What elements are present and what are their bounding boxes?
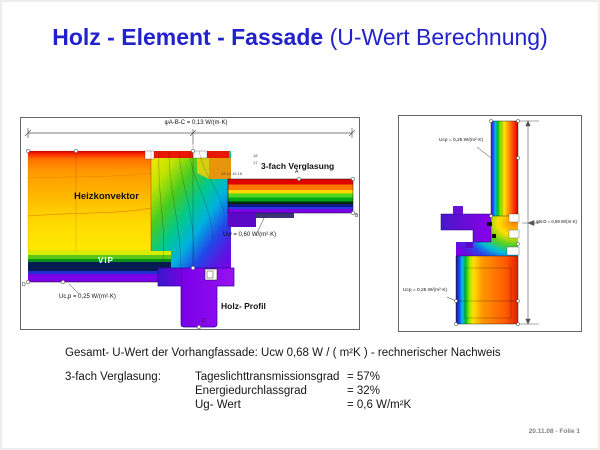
slide-title-main: Holz - Element - Fassade xyxy=(52,24,323,50)
property-name: Energiedurchlassgrad xyxy=(195,385,339,399)
slide-title-sub: (U-Wert Berechnung) xyxy=(323,24,548,50)
marker-d: D xyxy=(22,283,26,288)
glazing-property-values: = 57% = 32% = 0,6 W/m²K xyxy=(347,371,411,414)
u-bottom-annotation: Ucp = 0,25 W/(m²·K) xyxy=(403,289,447,294)
dimension-line-top xyxy=(25,128,355,144)
u-glazing-annotation: Uw = 0,60 W/(m²·K) xyxy=(223,232,276,238)
psi-right-annotation: ψB-D = 0,59 W/(m·K) xyxy=(536,220,577,224)
slide-title: Holz - Element - Fassade (U-Wert Berechn… xyxy=(0,24,600,51)
property-name: Ug- Wert xyxy=(195,399,339,413)
property-value: = 57% xyxy=(347,371,411,385)
thermal-section-vertical: Ucp = 0,25 W/(m²·K) ψB-D = 0,59 W/(m·K) … xyxy=(398,115,582,332)
psi-top-annotation: ψA-B-C = 0,13 W/(m·K) xyxy=(136,120,256,126)
glazing-property-names: Tageslichttransmissionsgrad Energiedurch… xyxy=(195,371,339,414)
purple-bracket xyxy=(441,206,491,248)
marker-a: A xyxy=(295,170,298,175)
marker-b: B xyxy=(355,214,358,219)
iso-number-18: 18 xyxy=(253,154,257,158)
wood-profile-column xyxy=(158,268,234,327)
glazing-summary-label: 3-fach Verglasung: xyxy=(65,371,161,383)
iso-number-row: 13 14 15 16 xyxy=(221,172,242,176)
lower-panel-column xyxy=(456,256,518,324)
property-name: Tageslichttransmissionsgrad xyxy=(195,371,339,385)
overall-uvalue-line: Gesamt- U-Wert der Vorhangfassade: Ucw 0… xyxy=(65,347,501,359)
u-top-annotation: Ucp = 0,25 W/(m²·K) xyxy=(439,139,483,144)
top-mullion-column xyxy=(491,121,518,216)
u-panel-annotation: Uc,p = 0,25 W/(m²·K) xyxy=(59,294,116,300)
thermal-section-horizontal: ψA-B-C = 0,13 W/(m·K) 3-fach Verglasung … xyxy=(20,117,360,330)
heizkonvektor-label: Heizkonvektor xyxy=(74,192,139,202)
holz-profil-label: Holz- Profil xyxy=(221,302,266,311)
marker-c: C xyxy=(202,319,206,324)
property-value: = 32% xyxy=(347,385,411,399)
property-value: = 0,6 W/m²K xyxy=(347,399,411,413)
glazing-band xyxy=(228,179,353,227)
iso-number-17: 17 xyxy=(253,161,257,165)
vip-label: VIP xyxy=(81,257,131,265)
slide-footer: 20.11.08 - Folie 1 xyxy=(529,428,580,435)
